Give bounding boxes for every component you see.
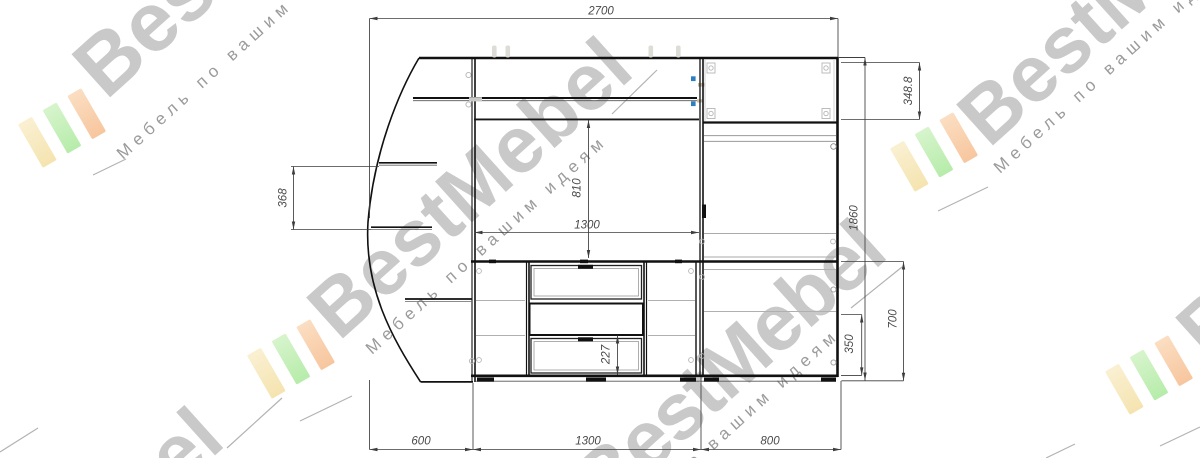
svg-text:BestMebel: BestMebel — [1160, 41, 1200, 375]
svg-text:810: 810 — [572, 178, 584, 198]
svg-text:227: 227 — [601, 344, 613, 365]
svg-text:BestMebel: BestMebel — [291, 21, 648, 355]
svg-text:700: 700 — [888, 309, 900, 329]
svg-text:1300: 1300 — [575, 436, 601, 448]
svg-text:2700: 2700 — [587, 6, 614, 18]
svg-text:368: 368 — [278, 188, 290, 208]
svg-text:600: 600 — [411, 436, 431, 448]
svg-text:1300: 1300 — [574, 220, 600, 232]
svg-text:1860: 1860 — [849, 205, 861, 231]
svg-text:348.8: 348.8 — [903, 76, 915, 105]
svg-text:BestMebel: BestMebel — [0, 391, 239, 458]
svg-text:800: 800 — [760, 436, 780, 448]
svg-text:350: 350 — [844, 334, 856, 354]
